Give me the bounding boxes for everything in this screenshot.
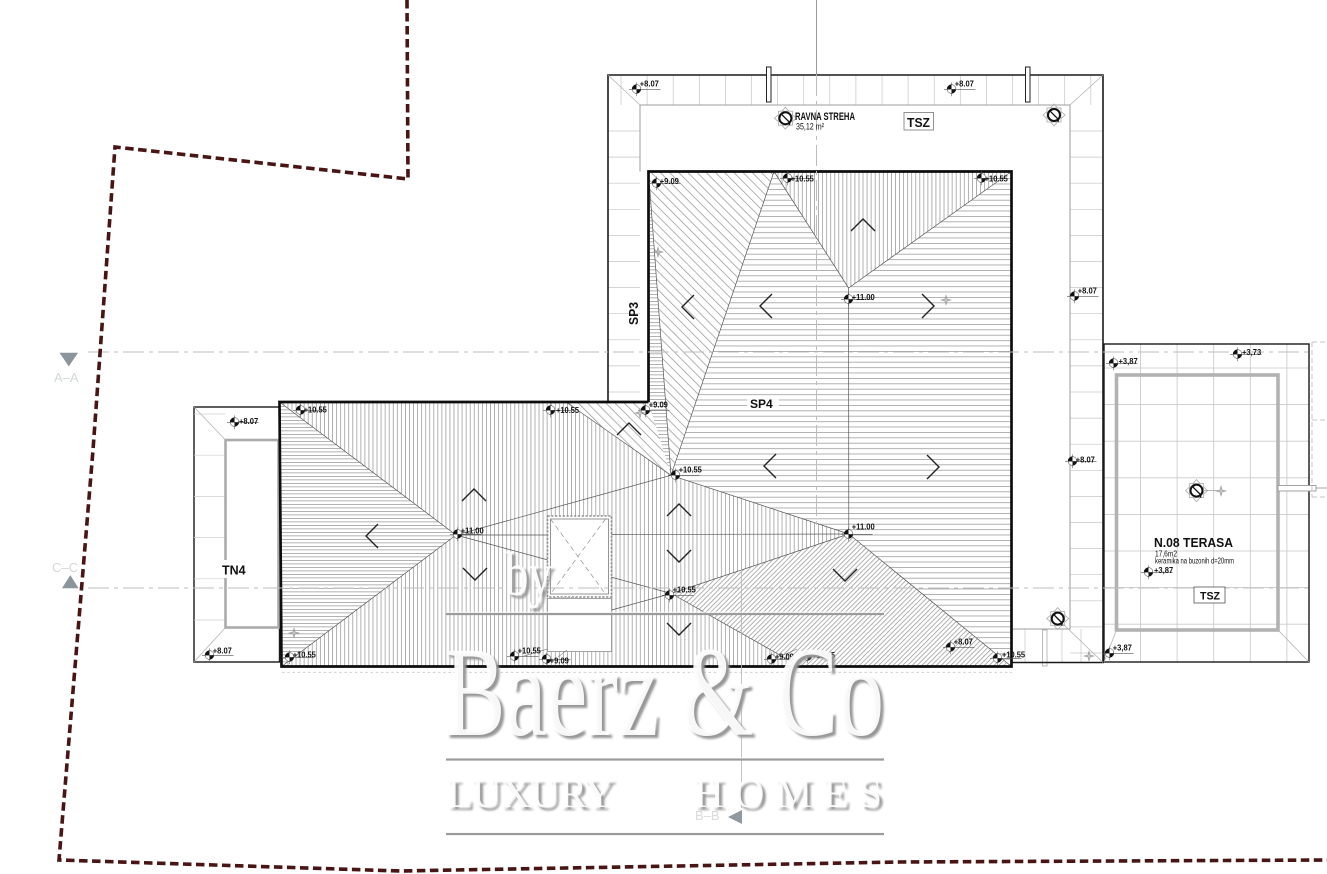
- svg-text:+3,73: +3,73: [1242, 347, 1262, 357]
- svg-text:TSZ: TSZ: [907, 116, 930, 130]
- svg-text:+3,87: +3,87: [1113, 642, 1133, 652]
- svg-text:+10.55: +10.55: [985, 174, 1008, 184]
- svg-text:+8.07: +8.07: [955, 78, 975, 88]
- svg-text:C–C: C–C: [52, 560, 78, 575]
- svg-text:+9.09: +9.09: [660, 176, 680, 186]
- svg-text:TN4: TN4: [222, 564, 246, 578]
- svg-text:SP3: SP3: [627, 302, 641, 325]
- svg-text:by: by: [505, 541, 552, 609]
- svg-text:+10.55: +10.55: [679, 464, 702, 474]
- svg-text:TSZ: TSZ: [1200, 591, 1220, 603]
- svg-text:+10.55: +10.55: [556, 405, 579, 415]
- svg-text:35,12 m²: 35,12 m²: [796, 122, 824, 133]
- svg-text:LUXURY: LUXURY: [447, 770, 614, 816]
- svg-text:Baerz & Co: Baerz & Co: [444, 621, 884, 763]
- svg-text:+10.55: +10.55: [791, 174, 814, 184]
- svg-text:+8.07: +8.07: [640, 78, 660, 88]
- svg-text:N.08 TERASA: N.08 TERASA: [1154, 536, 1233, 550]
- svg-text:keramika na buzonih d=20mm: keramika na buzonih d=20mm: [1155, 557, 1234, 566]
- svg-text:+8.07: +8.07: [954, 636, 974, 646]
- svg-text:A–A: A–A: [54, 370, 79, 385]
- svg-text:+10.55: +10.55: [673, 584, 696, 594]
- svg-text:SP4: SP4: [750, 397, 773, 411]
- svg-text:+10.55: +10.55: [1002, 650, 1025, 660]
- svg-text:+3,87: +3,87: [1154, 565, 1174, 575]
- svg-text:+10.55: +10.55: [293, 650, 316, 660]
- svg-text:+11.00: +11.00: [461, 526, 484, 536]
- svg-text:+8.07: +8.07: [1076, 455, 1096, 465]
- svg-text:+3,87: +3,87: [1119, 356, 1139, 366]
- svg-text:+8.07: +8.07: [213, 646, 233, 656]
- svg-text:+10.55: +10.55: [304, 405, 327, 415]
- svg-text:+11.00: +11.00: [852, 292, 875, 302]
- svg-text:+8.07: +8.07: [239, 416, 259, 426]
- svg-text:+11.00: +11.00: [852, 522, 875, 532]
- svg-text:+9.09: +9.09: [649, 399, 669, 409]
- svg-text:+8.07: +8.07: [1078, 285, 1098, 295]
